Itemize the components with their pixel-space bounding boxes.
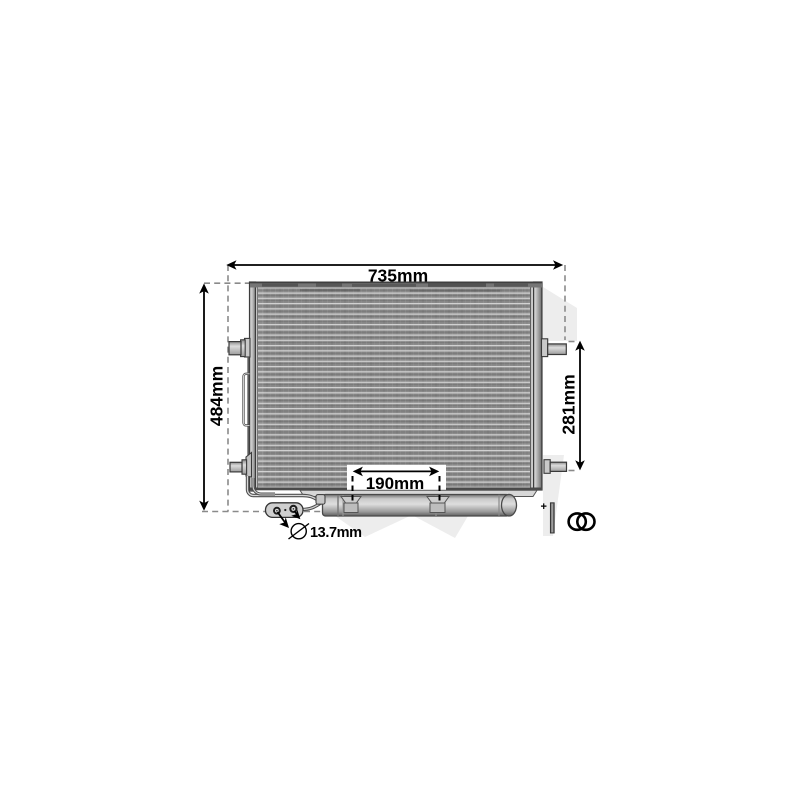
svg-text:+: + [541,501,547,513]
svg-text:735mm: 735mm [368,265,428,285]
svg-text:13.7mm: 13.7mm [310,525,362,541]
svg-text:190mm: 190mm [366,474,425,493]
svg-text:281mm: 281mm [559,374,579,434]
svg-text:484mm: 484mm [207,366,227,426]
